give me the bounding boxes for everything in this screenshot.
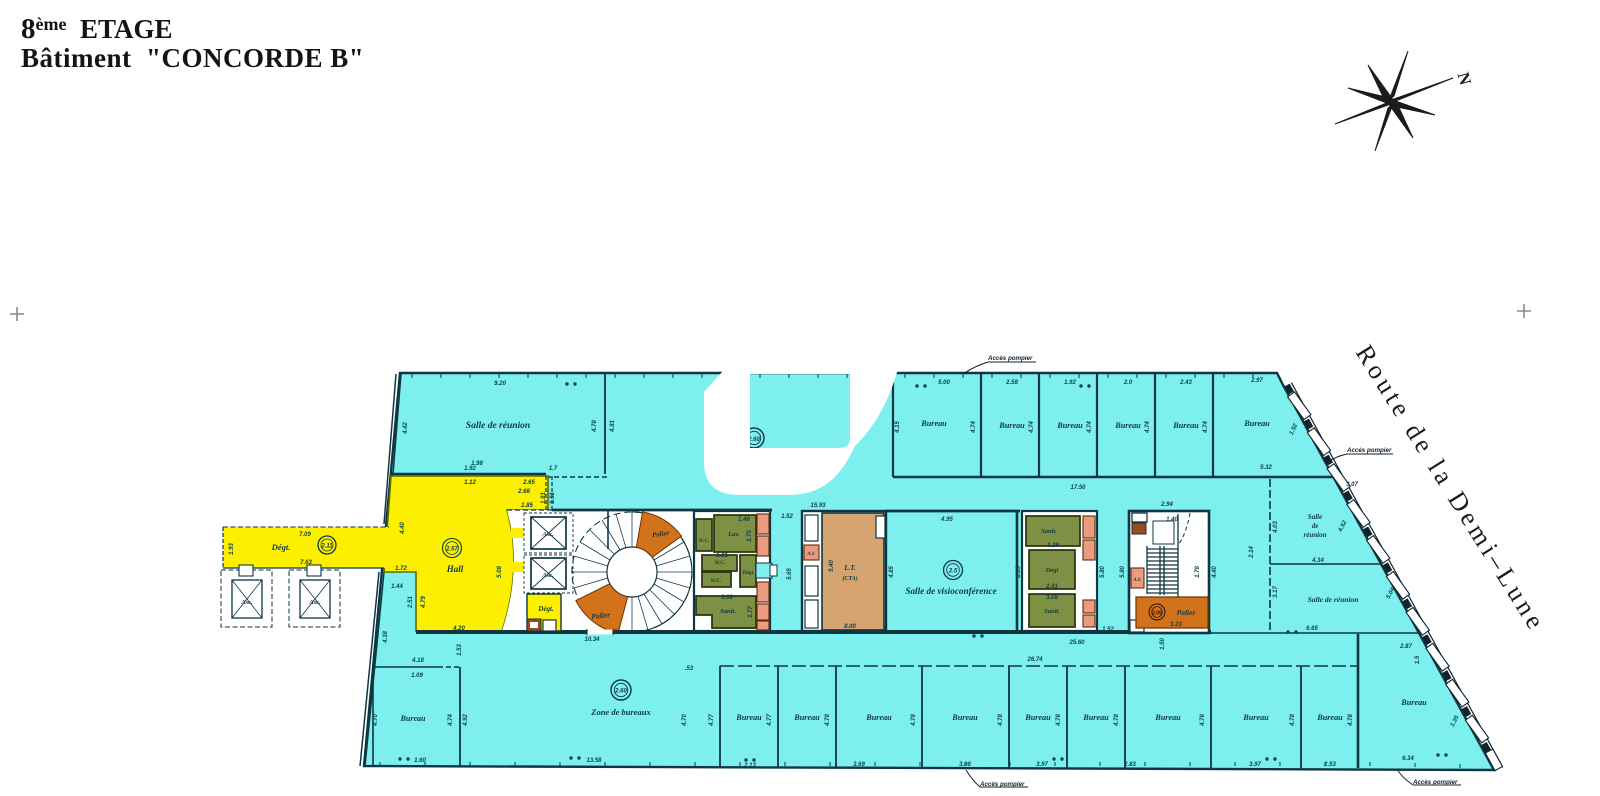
svg-text:7.63: 7.63 — [300, 560, 312, 566]
svg-text:W.C.: W.C. — [715, 560, 726, 566]
svg-text:4.40: 4.40 — [1212, 566, 1218, 579]
svg-text:2.5: 2.5 — [948, 569, 958, 575]
svg-text:2.87: 2.87 — [1399, 644, 1412, 650]
svg-text:4.85: 4.85 — [889, 566, 895, 579]
svg-text:Bureau: Bureau — [1242, 713, 1269, 722]
svg-text:1.75: 1.75 — [747, 530, 753, 542]
svg-text:4.92: 4.92 — [463, 714, 469, 727]
svg-text:2.58: 2.58 — [1005, 380, 1018, 386]
svg-text:Bureau: Bureau — [1154, 713, 1181, 722]
svg-text:1.7: 1.7 — [549, 466, 558, 472]
svg-text:4.74: 4.74 — [1029, 421, 1035, 434]
svg-text:4.95: 4.95 — [940, 517, 953, 523]
svg-text:5.08: 5.08 — [497, 566, 503, 578]
svg-text:W.C.: W.C. — [699, 538, 710, 544]
svg-text:réunion: réunion — [1304, 531, 1327, 539]
svg-text:3.08: 3.08 — [721, 595, 733, 601]
svg-text:2.43: 2.43 — [1179, 380, 1192, 386]
svg-text:Sanit.: Sanit. — [720, 608, 736, 615]
svg-text:3.08: 3.08 — [1046, 595, 1058, 601]
svg-text:4.77: 4.77 — [767, 714, 773, 727]
svg-text:8.65: 8.65 — [1016, 566, 1022, 578]
svg-text:4.78: 4.78 — [1200, 714, 1206, 727]
svg-text:7.09: 7.09 — [299, 532, 311, 538]
svg-text:Bureau: Bureau — [400, 714, 426, 723]
svg-text:4.15: 4.15 — [895, 421, 901, 434]
svg-text:Salle: Salle — [1308, 513, 1322, 521]
svg-text:1.50: 1.50 — [1160, 638, 1166, 650]
svg-text:2.57: 2.57 — [445, 547, 458, 553]
svg-text:5.65: 5.65 — [787, 568, 793, 580]
svg-text:1.98: 1.98 — [471, 461, 483, 467]
svg-text:4.03: 4.03 — [1273, 521, 1279, 534]
svg-text:1.44: 1.44 — [391, 584, 403, 590]
svg-text:Bureau: Bureau — [1316, 713, 1343, 722]
svg-text:4.74: 4.74 — [1087, 421, 1093, 434]
svg-text:Asc.: Asc. — [541, 531, 554, 538]
svg-text:4.78: 4.78 — [1114, 714, 1120, 727]
svg-text:2.05: 2.05 — [1152, 611, 1162, 617]
svg-text:Sanit.: Sanit. — [1041, 528, 1057, 535]
svg-text:Bureau: Bureau — [1243, 419, 1270, 428]
svg-text:8.00: 8.00 — [844, 624, 856, 630]
svg-text:4.18: 4.18 — [411, 658, 424, 664]
svg-text:Bureau: Bureau — [735, 713, 762, 722]
svg-text:5.80: 5.80 — [1100, 566, 1106, 578]
svg-text:4.38: 4.38 — [383, 631, 389, 644]
svg-text:9.20: 9.20 — [494, 381, 506, 387]
svg-text:2.68: 2.68 — [517, 489, 530, 495]
svg-text:4.74: 4.74 — [1145, 421, 1151, 434]
svg-text:1.77: 1.77 — [748, 606, 754, 618]
svg-text:4.78: 4.78 — [1056, 714, 1062, 727]
svg-text:3.98: 3.98 — [959, 762, 971, 768]
svg-text:5.00: 5.00 — [938, 380, 950, 386]
svg-text:(CTA): (CTA) — [842, 575, 857, 582]
svg-text:4.78: 4.78 — [1290, 714, 1296, 727]
svg-text:2.14: 2.14 — [1249, 546, 1255, 559]
svg-text:6.65: 6.65 — [1306, 626, 1318, 632]
svg-text:Bureau: Bureau — [1400, 698, 1427, 707]
svg-text:Asc.: Asc. — [308, 599, 321, 606]
svg-text:Bureau: Bureau — [920, 419, 947, 428]
svg-text:4.20: 4.20 — [452, 626, 465, 632]
svg-text:Bureau: Bureau — [1056, 421, 1083, 430]
svg-text:Bureau: Bureau — [793, 713, 820, 722]
svg-text:1.53: 1.53 — [457, 644, 463, 656]
svg-text:2.11: 2.11 — [320, 544, 333, 550]
svg-text:Bureau: Bureau — [1082, 713, 1109, 722]
svg-text:Bureau: Bureau — [1114, 421, 1141, 430]
svg-text:1.52: 1.52 — [781, 514, 793, 520]
svg-text:Bureau: Bureau — [998, 421, 1025, 430]
svg-text:1.52: 1.52 — [1102, 627, 1114, 633]
svg-text:.53: .53 — [685, 666, 694, 672]
svg-text:17.50: 17.50 — [1070, 485, 1086, 491]
svg-text:Bureau: Bureau — [951, 713, 978, 722]
svg-text:2.13: 2.13 — [743, 763, 756, 769]
svg-text:5.40: 5.40 — [829, 560, 835, 572]
svg-text:Salle de visioconférence: Salle de visioconférence — [905, 586, 996, 596]
svg-text:Bureau: Bureau — [1172, 421, 1199, 430]
svg-text:Bâtiment "CONCORDE B": Bâtiment "CONCORDE B" — [21, 43, 364, 73]
svg-text:4.74: 4.74 — [448, 714, 454, 727]
svg-text:Lav.: Lav. — [727, 531, 740, 538]
svg-text:Dégt: Dégt — [742, 570, 754, 576]
svg-text:de: de — [1312, 522, 1319, 530]
svg-text:Dégt.: Dégt. — [537, 605, 554, 613]
svg-text:A.S: A.S — [806, 552, 815, 557]
svg-text:5.80: 5.80 — [1120, 566, 1126, 578]
svg-text:2.0: 2.0 — [1123, 380, 1133, 386]
svg-text:A.S: A.S — [1132, 578, 1141, 583]
svg-text:1.40: 1.40 — [1166, 517, 1178, 523]
svg-text:Bureau: Bureau — [1024, 713, 1051, 722]
svg-text:4.77: 4.77 — [709, 714, 715, 727]
svg-text:4.81: 4.81 — [610, 420, 616, 433]
svg-text:Sanit.: Sanit. — [1044, 608, 1060, 615]
svg-text:2.60: 2.60 — [614, 689, 627, 695]
svg-text:3.69: 3.69 — [853, 762, 865, 768]
svg-text:6.34: 6.34 — [1402, 756, 1414, 762]
svg-text:4.78: 4.78 — [998, 714, 1004, 727]
svg-text:Hall: Hall — [446, 564, 464, 574]
svg-text:4.78: 4.78 — [911, 714, 917, 727]
svg-text:4.40: 4.40 — [400, 522, 406, 535]
svg-text:1.46: 1.46 — [738, 517, 750, 523]
svg-text:25.60: 25.60 — [1068, 640, 1085, 646]
svg-text:4.74: 4.74 — [1203, 421, 1209, 434]
svg-text:Asc.: Asc. — [541, 572, 554, 579]
svg-text:4.78: 4.78 — [592, 420, 598, 433]
svg-text:3.17: 3.17 — [1273, 586, 1279, 598]
svg-text:1.51: 1.51 — [550, 492, 556, 504]
svg-text:Dégt.: Dégt. — [271, 542, 291, 552]
svg-text:1.60: 1.60 — [414, 758, 426, 764]
svg-text:13.58: 13.58 — [586, 758, 602, 764]
svg-text:10.34: 10.34 — [584, 637, 600, 643]
svg-text:1.72: 1.72 — [395, 566, 407, 572]
svg-text:2.51: 2.51 — [408, 596, 414, 609]
svg-text:1.81: 1.81 — [541, 492, 547, 504]
svg-text:4.79: 4.79 — [421, 596, 427, 609]
svg-text:4.70: 4.70 — [682, 714, 688, 727]
svg-text:4.42: 4.42 — [403, 422, 409, 435]
svg-text:1.92: 1.92 — [1064, 380, 1076, 386]
svg-text:3.97: 3.97 — [1249, 762, 1261, 768]
svg-text:3.07: 3.07 — [1346, 482, 1358, 488]
svg-text:1.09: 1.09 — [411, 673, 423, 679]
svg-text:Bureau: Bureau — [865, 713, 892, 722]
svg-text:4.70: 4.70 — [373, 714, 379, 727]
svg-text:1.93: 1.93 — [229, 543, 235, 555]
svg-text:1.29: 1.29 — [1047, 543, 1059, 549]
svg-text:L.T.: L.T. — [843, 564, 856, 572]
svg-text:Accès pompier: Accès pompier — [1346, 447, 1392, 454]
svg-text:2.53: 2.53 — [1323, 762, 1336, 768]
svg-text:1.78: 1.78 — [1195, 566, 1201, 578]
svg-text:1.12: 1.12 — [464, 480, 476, 486]
svg-text:W.C.: W.C. — [711, 578, 722, 584]
svg-text:3.23: 3.23 — [1170, 622, 1182, 628]
svg-text:Salle de réunion: Salle de réunion — [466, 421, 530, 431]
svg-text:4.74: 4.74 — [971, 421, 977, 434]
svg-text:Zone de bureaux: Zone de bureaux — [590, 707, 651, 717]
svg-text:Accès pompier: Accès pompier — [987, 355, 1033, 362]
svg-text:Palier: Palier — [1177, 608, 1196, 617]
svg-text:4.78: 4.78 — [1348, 714, 1354, 727]
svg-text:2.94: 2.94 — [1160, 502, 1173, 508]
svg-text:4.34: 4.34 — [1311, 558, 1324, 564]
svg-text:Asc.: Asc. — [240, 599, 253, 606]
svg-text:3.97: 3.97 — [1036, 762, 1048, 768]
svg-text:2.41: 2.41 — [1045, 584, 1058, 590]
svg-text:2.83: 2.83 — [1123, 762, 1136, 768]
svg-text:1.85: 1.85 — [521, 503, 533, 509]
svg-text:1.5: 1.5 — [1415, 655, 1421, 664]
svg-text:15.93: 15.93 — [810, 503, 826, 509]
svg-text:26.74: 26.74 — [1026, 657, 1043, 663]
svg-text:2.97: 2.97 — [1250, 378, 1263, 384]
svg-text:Salle de réunion: Salle de réunion — [1308, 595, 1359, 604]
svg-text:1.01: 1.01 — [716, 553, 728, 559]
svg-text:4.78: 4.78 — [825, 714, 831, 727]
svg-text:2.65: 2.65 — [522, 480, 535, 486]
svg-text:Dégt: Dégt — [1045, 567, 1059, 574]
svg-text:5.32: 5.32 — [1260, 465, 1272, 471]
